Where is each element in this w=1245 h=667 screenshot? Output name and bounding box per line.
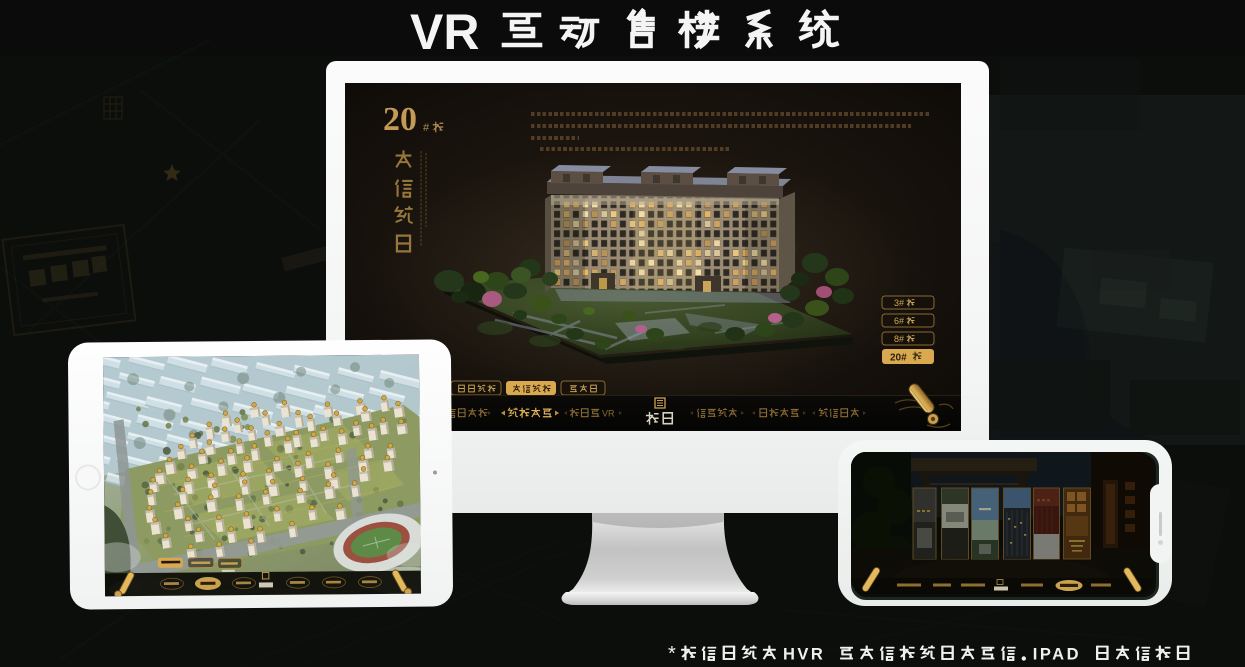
svg-text:VR: VR	[602, 409, 615, 419]
svg-text:VR: VR	[410, 4, 479, 58]
svg-text:3#: 3#	[894, 298, 904, 308]
svg-text:6#: 6#	[894, 316, 904, 326]
svg-text:#: #	[423, 122, 430, 134]
svg-text:8#: 8#	[894, 334, 904, 344]
svg-text:IPAD: IPAD	[1033, 646, 1081, 664]
svg-text:*: *	[668, 643, 676, 665]
svg-text:20#: 20#	[890, 353, 907, 364]
svg-text:HVR: HVR	[783, 646, 825, 664]
